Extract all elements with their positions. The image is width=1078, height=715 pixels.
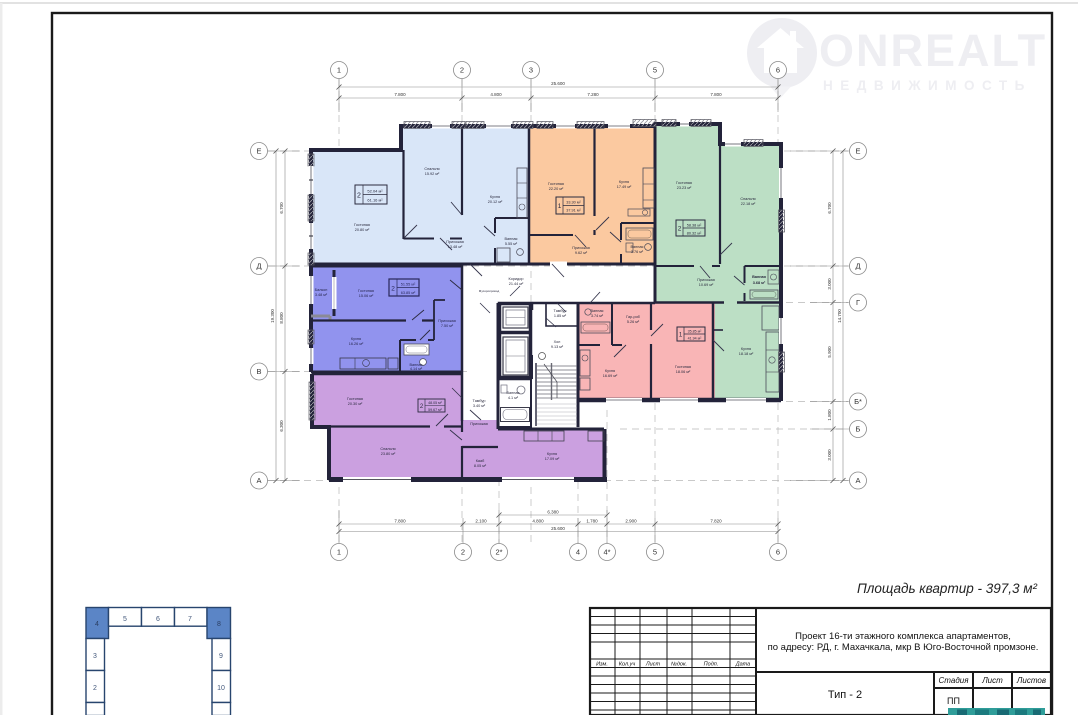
- svg-text:Б: Б: [856, 425, 861, 434]
- svg-text:6.300: 6.300: [279, 420, 284, 432]
- svg-text:4*: 4*: [603, 548, 610, 557]
- svg-text:3.000: 3.000: [827, 278, 832, 290]
- svg-text:Тамбур: Тамбур: [554, 309, 567, 313]
- svg-text:Прихожая: Прихожая: [438, 319, 456, 323]
- svg-text:по адресу: РД, г. Махачкала, м: по адресу: РД, г. Махачкала, мкр В Юго-В…: [768, 642, 1039, 653]
- svg-text:3.74 м²: 3.74 м²: [591, 314, 604, 318]
- svg-text:17.09 м²: 17.09 м²: [545, 457, 560, 461]
- svg-text:1.800: 1.800: [827, 409, 832, 421]
- svg-text:20.12 м²: 20.12 м²: [488, 200, 503, 204]
- svg-text:6.700: 6.700: [827, 202, 832, 214]
- svg-text:3: 3: [529, 66, 533, 75]
- svg-text:3.40 м²: 3.40 м²: [473, 404, 486, 408]
- svg-text:1: 1: [558, 203, 562, 210]
- svg-text:6: 6: [776, 66, 780, 75]
- svg-text:5: 5: [123, 616, 127, 623]
- svg-text:1.780: 1.780: [586, 519, 598, 524]
- svg-text:13.48 м²: 13.48 м²: [448, 245, 463, 249]
- svg-text:Д: Д: [855, 262, 860, 271]
- svg-text:25.600: 25.600: [551, 526, 565, 531]
- svg-text:14.700: 14.700: [837, 309, 842, 323]
- svg-text:ПП: ПП: [947, 696, 960, 706]
- svg-text:Гостиная: Гостиная: [675, 365, 691, 369]
- svg-text:41.94 м²: 41.94 м²: [688, 337, 702, 341]
- svg-text:8.05 м²: 8.05 м²: [474, 464, 487, 468]
- svg-text:Спальня: Спальня: [380, 447, 395, 451]
- svg-text:Спальня: Спальня: [740, 197, 755, 201]
- svg-text:Мусоропровод: Мусоропровод: [479, 289, 500, 293]
- svg-text:Тамбур: Тамбур: [473, 399, 486, 403]
- svg-text:Листов: Листов: [1016, 676, 1046, 685]
- svg-text:Хол: Хол: [554, 340, 561, 344]
- svg-text:А: А: [256, 476, 261, 485]
- svg-text:Гостиная: Гостиная: [354, 223, 370, 227]
- svg-text:1.85 м²: 1.85 м²: [554, 314, 567, 318]
- svg-text:18.18 м²: 18.18 м²: [739, 352, 754, 356]
- svg-text:Б*: Б*: [854, 397, 862, 406]
- svg-text:7.800: 7.800: [394, 92, 406, 97]
- svg-text:2: 2: [460, 66, 464, 75]
- svg-text:Кухня: Кухня: [547, 452, 557, 456]
- svg-text:Г: Г: [856, 298, 860, 307]
- svg-text:9.62 м²: 9.62 м²: [575, 251, 588, 255]
- svg-text:3.68 м²: 3.68 м²: [753, 281, 766, 285]
- svg-text:ONREALT: ONREALT: [819, 25, 1047, 76]
- svg-text:Кухня: Кухня: [490, 195, 500, 199]
- svg-text:10.69 м²: 10.69 м²: [699, 283, 714, 287]
- svg-text:3: 3: [93, 653, 97, 660]
- svg-text:3.000: 3.000: [827, 449, 832, 461]
- svg-text:Гар-роб: Гар-роб: [626, 315, 641, 319]
- svg-text:37.91 м²: 37.91 м²: [566, 209, 581, 213]
- svg-text:Д: Д: [256, 262, 261, 271]
- svg-text:61.16 м²: 61.16 м²: [367, 198, 383, 203]
- svg-text:Кухня: Кухня: [351, 337, 361, 341]
- svg-text:Гостиная: Гостиная: [676, 181, 692, 185]
- svg-text:Е: Е: [256, 147, 261, 156]
- svg-text:Кухня: Кухня: [619, 180, 629, 184]
- svg-text:4: 4: [95, 621, 99, 628]
- svg-text:5.900: 5.900: [827, 346, 832, 358]
- svg-text:15.92 м²: 15.92 м²: [425, 172, 440, 176]
- svg-text:18.06 м²: 18.06 м²: [676, 370, 691, 374]
- svg-text:Стадия: Стадия: [939, 676, 970, 685]
- svg-text:7.800: 7.800: [710, 92, 722, 97]
- svg-text:Ванная: Ванная: [504, 237, 517, 241]
- svg-text:7.820: 7.820: [710, 519, 722, 524]
- svg-text:Гостиная: Гостиная: [347, 397, 363, 401]
- svg-text:3.48 м²: 3.48 м²: [315, 293, 328, 297]
- svg-text:2.100: 2.100: [475, 519, 487, 524]
- svg-text:25.600: 25.600: [551, 81, 565, 86]
- svg-text:7.50 м²: 7.50 м²: [441, 324, 454, 328]
- svg-text:7.280: 7.280: [587, 92, 599, 97]
- svg-text:16.26 м²: 16.26 м²: [349, 342, 364, 346]
- svg-text:23.23 м²: 23.23 м²: [677, 186, 692, 190]
- svg-text:А: А: [855, 476, 860, 485]
- svg-text:15.06 м²: 15.06 м²: [359, 294, 374, 298]
- svg-text:6: 6: [776, 548, 780, 557]
- svg-text:35.85 м²: 35.85 м²: [688, 330, 702, 334]
- svg-text:33.30 м²: 33.30 м²: [566, 201, 581, 205]
- svg-text:51.55 м²: 51.55 м²: [401, 283, 416, 287]
- svg-text:80.32 м²: 80.32 м²: [687, 232, 702, 236]
- svg-text:52.04 м²: 52.04 м²: [367, 189, 383, 194]
- svg-text:9: 9: [219, 653, 223, 660]
- svg-text:Прихожая: Прихожая: [470, 422, 488, 426]
- svg-text:4.800: 4.800: [532, 519, 544, 524]
- svg-text:2: 2: [357, 193, 361, 200]
- svg-text:Спальня: Спальня: [424, 167, 439, 171]
- svg-text:1: 1: [337, 548, 341, 557]
- svg-text:21.44 м²: 21.44 м²: [509, 282, 524, 286]
- svg-text:Коридор: Коридор: [509, 277, 524, 281]
- svg-text:4.800: 4.800: [490, 92, 502, 97]
- svg-text:№док.: №док.: [671, 662, 687, 668]
- svg-text:63.85 м²: 63.85 м²: [401, 291, 416, 295]
- svg-text:4: 4: [576, 548, 580, 557]
- svg-text:2: 2: [678, 226, 682, 233]
- svg-text:9.13 м²: 9.13 м²: [551, 345, 564, 349]
- svg-text:16.69 м²: 16.69 м²: [603, 374, 618, 378]
- svg-text:Изм.: Изм.: [596, 662, 608, 668]
- svg-text:5: 5: [653, 548, 657, 557]
- svg-text:2: 2: [391, 286, 395, 293]
- svg-text:8.800: 8.800: [279, 312, 284, 324]
- svg-text:В: В: [256, 367, 261, 376]
- svg-text:20.80 м²: 20.80 м²: [355, 228, 370, 232]
- svg-text:Тип - 2: Тип - 2: [828, 689, 862, 701]
- svg-text:58.38 м²: 58.38 м²: [687, 224, 702, 228]
- svg-text:Балкон: Балкон: [315, 288, 328, 292]
- svg-text:Лист: Лист: [981, 676, 1003, 685]
- svg-text:Подп.: Подп.: [704, 662, 719, 668]
- svg-text:Кааб: Кааб: [476, 459, 485, 463]
- svg-text:Прихожая: Прихожая: [446, 240, 464, 244]
- svg-text:Лист: Лист: [645, 662, 661, 668]
- svg-text:Прихожая: Прихожая: [572, 246, 590, 250]
- svg-text:Гостиная: Гостиная: [548, 182, 564, 186]
- svg-text:6: 6: [156, 616, 160, 623]
- svg-text:2*: 2*: [495, 548, 502, 557]
- svg-text:Кухня: Кухня: [741, 347, 751, 351]
- svg-text:17.49 м²: 17.49 м²: [617, 185, 632, 189]
- svg-text:5.55 м²: 5.55 м²: [505, 242, 518, 246]
- svg-text:6.380: 6.380: [547, 510, 559, 515]
- svg-text:3.76 м²: 3.76 м²: [631, 250, 644, 254]
- svg-text:19.300: 19.300: [270, 309, 275, 323]
- svg-text:2: 2: [461, 548, 465, 557]
- svg-text:Ванная: Ванная: [506, 391, 519, 395]
- svg-text:7.800: 7.800: [394, 519, 406, 524]
- svg-text:Проект 16-ти этажного комплекс: Проект 16-ти этажного комплекса апартаме…: [795, 631, 1011, 642]
- svg-text:5.26 м²: 5.26 м²: [627, 320, 640, 324]
- svg-text:Прихожая: Прихожая: [697, 278, 715, 282]
- svg-text:НЕДВИЖИМОСТЬ: НЕДВИЖИМОСТЬ: [823, 78, 1032, 93]
- svg-text:20.30 м²: 20.30 м²: [348, 402, 363, 406]
- svg-text:23.80 м²: 23.80 м²: [381, 452, 396, 456]
- svg-text:Ванная: Ванная: [752, 275, 766, 279]
- svg-text:59.67 м²: 59.67 м²: [428, 408, 442, 412]
- svg-text:8: 8: [217, 621, 221, 628]
- svg-text:4.14 м²: 4.14 м²: [410, 367, 423, 371]
- svg-text:2: 2: [93, 685, 97, 692]
- svg-text:4.1 м²: 4.1 м²: [508, 396, 519, 400]
- svg-text:Ванная: Ванная: [630, 245, 643, 249]
- svg-text:48.05 м²: 48.05 м²: [428, 401, 442, 405]
- svg-text:7: 7: [188, 616, 192, 623]
- svg-text:10: 10: [217, 685, 225, 692]
- svg-text:1: 1: [337, 66, 341, 75]
- svg-text:Гостиная: Гостиная: [358, 289, 374, 293]
- svg-text:Кухня: Кухня: [605, 369, 615, 373]
- svg-text:6.700: 6.700: [279, 202, 284, 214]
- svg-text:Дата: Дата: [735, 662, 751, 668]
- svg-text:Площадь квартир - 397,3 м²: Площадь квартир - 397,3 м²: [857, 581, 1038, 596]
- svg-text:22.20 м²: 22.20 м²: [549, 187, 564, 191]
- svg-text:Кол.уч: Кол.уч: [619, 662, 636, 668]
- svg-text:Е: Е: [855, 147, 860, 156]
- svg-text:5: 5: [653, 66, 657, 75]
- svg-text:2.900: 2.900: [625, 519, 637, 524]
- svg-text:22.18 м²: 22.18 м²: [741, 202, 756, 206]
- svg-text:Ванная: Ванная: [590, 309, 603, 313]
